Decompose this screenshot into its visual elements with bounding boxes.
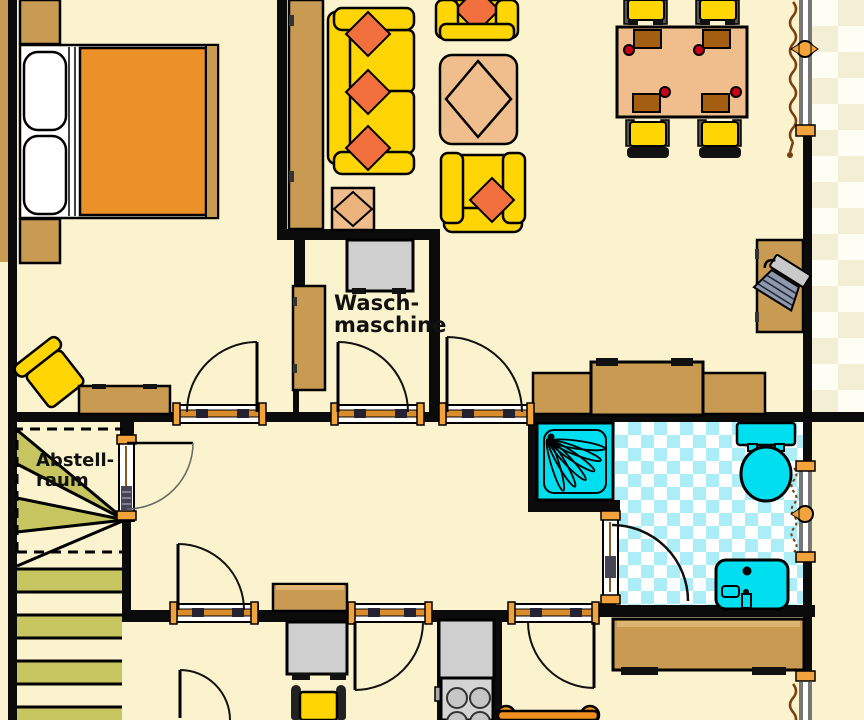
door-closet bbox=[331, 342, 424, 425]
armchair-top bbox=[436, 0, 518, 40]
nightstand-top bbox=[20, 0, 60, 44]
placemat bbox=[703, 30, 730, 48]
basin-tap bbox=[742, 594, 751, 608]
washbasin bbox=[716, 560, 788, 609]
storage-room-label-line2: raum bbox=[36, 471, 114, 491]
stove bbox=[441, 678, 493, 720]
shower bbox=[537, 423, 613, 500]
sofa bbox=[328, 8, 414, 174]
nightstand-bottom bbox=[20, 219, 60, 263]
gray-table bbox=[287, 622, 347, 680]
door-bedroom bbox=[173, 342, 266, 425]
coffee-table bbox=[440, 55, 517, 144]
door-room-left bbox=[348, 602, 432, 690]
closet-cabinet bbox=[293, 286, 325, 390]
window-bottom-right bbox=[790, 671, 815, 720]
wall-unit bbox=[533, 358, 765, 415]
door-room-right bbox=[508, 602, 599, 688]
storage-room-label-line1: Abstell- bbox=[36, 451, 114, 471]
dining-table bbox=[617, 27, 747, 117]
placemat bbox=[633, 94, 660, 112]
door-living bbox=[439, 337, 534, 425]
dining-chair bbox=[624, 0, 667, 25]
dining-chair bbox=[698, 120, 741, 158]
burner bbox=[447, 688, 467, 708]
curtain bbox=[790, 2, 796, 142]
pillow bbox=[24, 136, 66, 214]
washing-machine-label: Wasch- maschine bbox=[334, 292, 446, 336]
transparency-checkerboard bbox=[812, 0, 864, 417]
plate bbox=[624, 45, 634, 55]
yellow-chair bbox=[291, 685, 346, 720]
toilet bbox=[737, 423, 795, 501]
hall-cabinet bbox=[273, 584, 347, 611]
dining-chair bbox=[696, 0, 739, 25]
side-table bbox=[332, 188, 374, 230]
wardrobe bbox=[289, 0, 323, 229]
storage-room-label: Abstell- raum bbox=[36, 451, 114, 491]
floor-plan: Wasch- maschine Abstell- raum bbox=[0, 0, 864, 720]
door-storage bbox=[117, 435, 193, 521]
sideboard bbox=[613, 619, 804, 675]
door-bottom-left bbox=[180, 670, 230, 720]
curtain bbox=[790, 684, 796, 720]
bedroom-armchair bbox=[12, 335, 89, 412]
washing-machine-label-line2: maschine bbox=[334, 314, 446, 336]
plate bbox=[731, 87, 741, 97]
double-bed bbox=[20, 45, 218, 218]
pillow bbox=[24, 52, 66, 130]
dining-chair bbox=[626, 120, 669, 158]
placemat bbox=[702, 94, 729, 112]
armchair-bottom bbox=[441, 153, 525, 232]
plate bbox=[660, 87, 670, 97]
plate bbox=[694, 45, 704, 55]
floor-plan-drawing bbox=[0, 0, 864, 720]
bench bbox=[497, 706, 599, 720]
placemat bbox=[634, 30, 661, 48]
washing-machine-label-line1: Wasch- bbox=[334, 292, 446, 314]
bedroom-dresser bbox=[79, 384, 170, 414]
door-hall-left bbox=[170, 544, 258, 624]
washing-machine bbox=[347, 240, 413, 294]
burner bbox=[470, 688, 490, 708]
